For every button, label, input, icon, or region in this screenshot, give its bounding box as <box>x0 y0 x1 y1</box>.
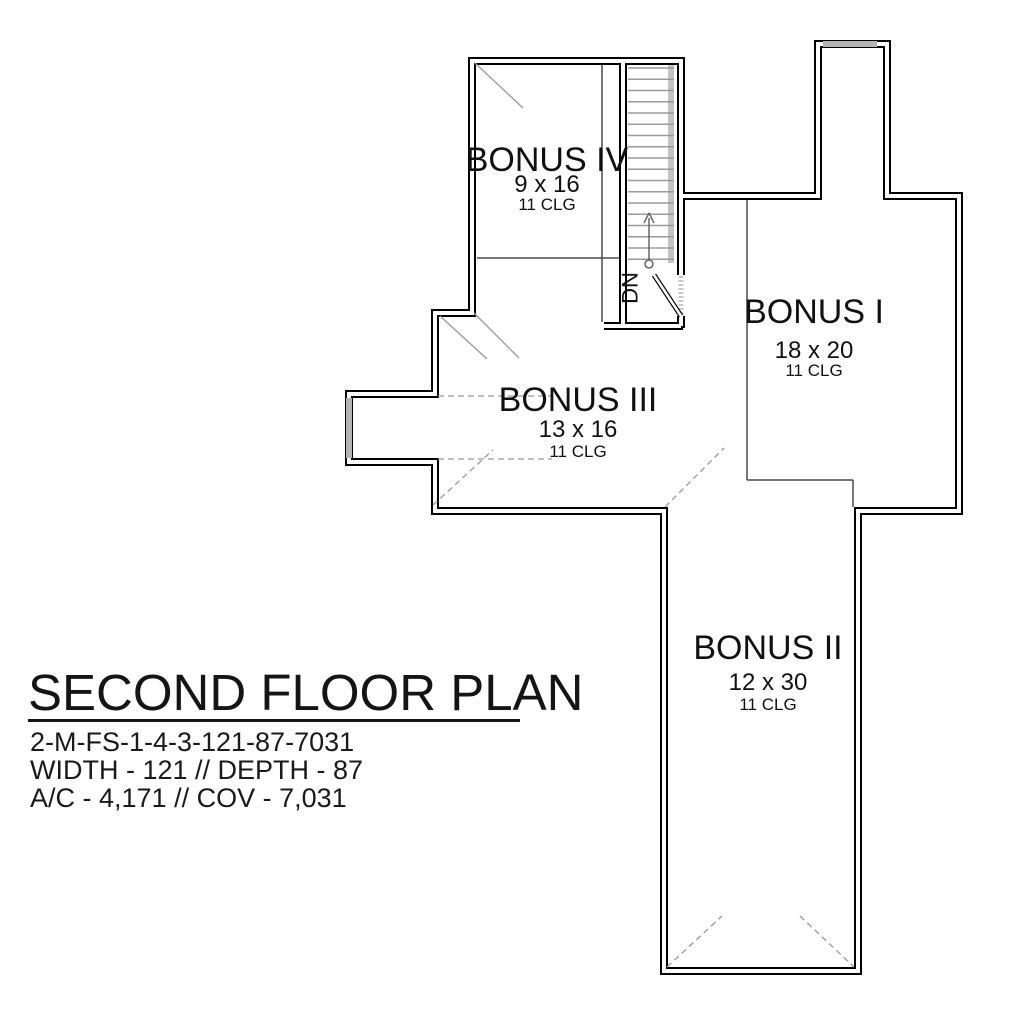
stair-dn-label: DN <box>618 272 643 304</box>
bay-window <box>346 398 352 458</box>
room-ceiling-bonus4: 11 CLG <box>518 196 575 213</box>
exterior-wall-path <box>349 44 959 971</box>
plan-title: SECOND FLOOR PLAN <box>28 666 583 719</box>
stair-treads <box>628 68 674 259</box>
room-size-bonus3: 13 x 16 <box>539 418 618 442</box>
stair-door-leaf <box>654 275 681 316</box>
room-size-bonus4: 9 x 16 <box>514 173 579 197</box>
interior-partition-lines <box>477 65 853 507</box>
dormer-top-window <box>823 41 877 47</box>
plan-dimensions: WIDTH - 121 // DEPTH - 87 <box>30 757 363 784</box>
room-ceiling-bonus3: 11 CLG <box>549 443 606 460</box>
stair-stringer-band <box>668 65 674 263</box>
room-ceiling-bonus2: 11 CLG <box>739 696 796 713</box>
title-underline <box>28 719 520 722</box>
room-size-bonus1: 18 x 20 <box>775 339 854 363</box>
plan-area: A/C - 4,171 // COV - 7,031 <box>30 785 347 812</box>
room-size-bonus2: 12 x 30 <box>729 671 808 695</box>
plan-number: 2-M-FS-1-4-3-121-87-7031 <box>30 729 354 756</box>
room-label-bonus3: BONUS III <box>499 383 658 417</box>
wall-outline-black <box>349 44 959 971</box>
room-label-bonus1: BONUS I <box>744 295 884 329</box>
room-label-bonus2: BONUS II <box>693 631 842 665</box>
room-ceiling-bonus1: 11 CLG <box>785 362 842 379</box>
